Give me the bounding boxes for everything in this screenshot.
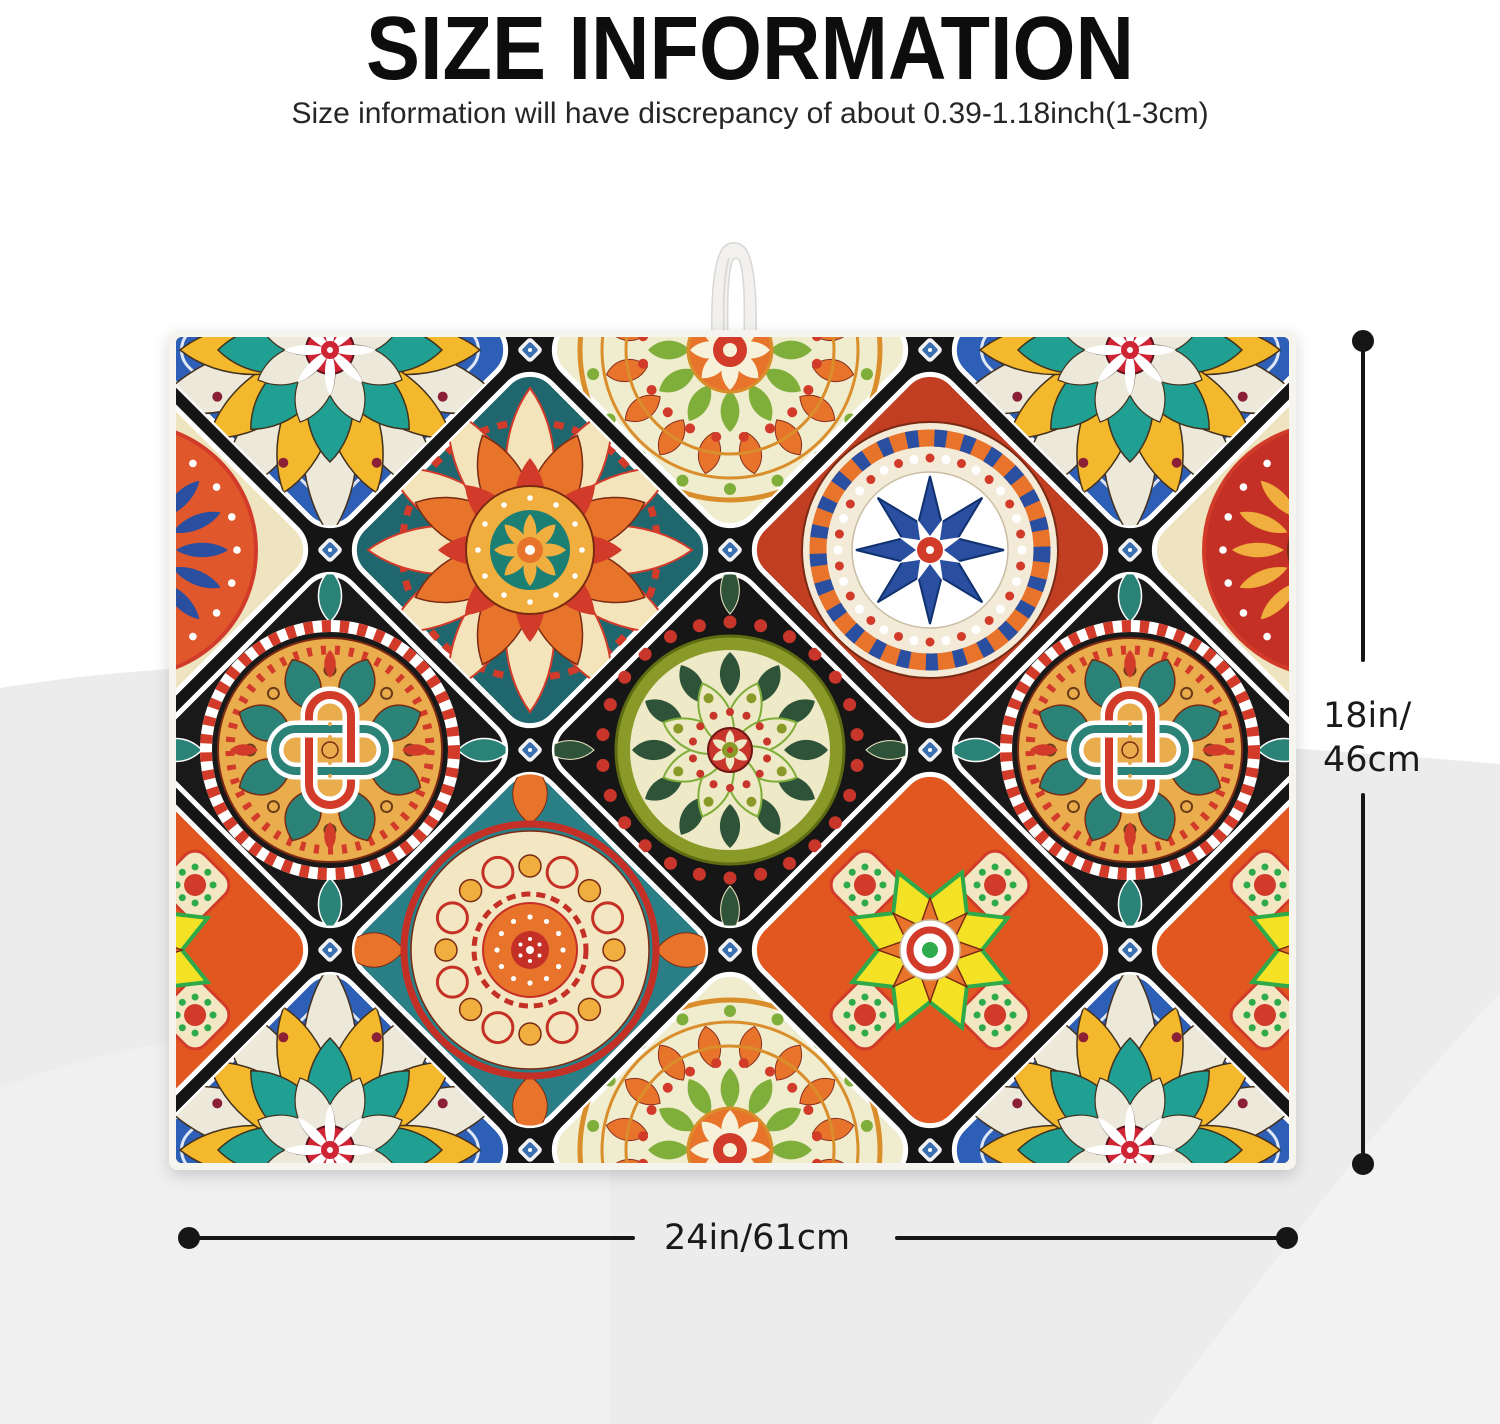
mat-tile-sliver [1142, 0, 1500, 338]
product-size-diagram [0, 0, 1500, 1424]
width-dimension-label: 24in/61cm [664, 1216, 850, 1260]
mat-tile-sliver [0, 0, 318, 338]
height-dimension-inches: 18in/ [1323, 694, 1421, 738]
mat-tile-sliver [342, 0, 718, 338]
hanging-loop [712, 243, 756, 340]
mat-tile-sliver [742, 0, 1118, 338]
height-dimension-cm: 46cm [1323, 738, 1421, 782]
height-dimension-label: 18in/ 46cm [1323, 694, 1421, 782]
size-information-page: SIZE INFORMATION Size information will h… [0, 0, 1500, 1424]
